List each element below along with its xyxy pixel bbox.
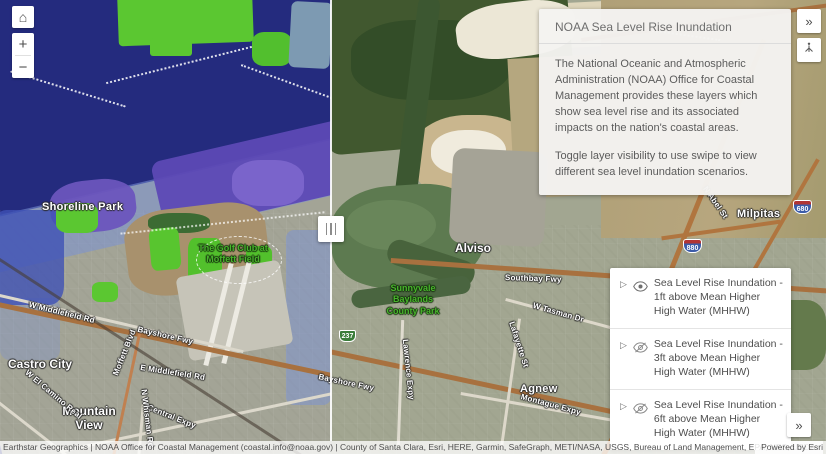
map-label-golf-club: The Golf Club at Moffett Field bbox=[192, 243, 274, 266]
info-panel-title: NOAA Sea Level Rise Inundation bbox=[539, 9, 791, 44]
collapse-panel-button[interactable]: » bbox=[797, 9, 821, 33]
map-label-castro-city: Castro City bbox=[8, 357, 72, 371]
layer-label: Sea Level Rise Inundation - 1ft above Me… bbox=[654, 277, 783, 319]
collapse-layer-list-button[interactable]: » bbox=[787, 413, 811, 437]
app-window: Shoreline Park The Golf Club at Moffett … bbox=[0, 0, 826, 454]
map-terrain-shape bbox=[288, 1, 331, 69]
info-panel: NOAA Sea Level Rise Inundation The Natio… bbox=[539, 9, 791, 195]
expand-arrow-icon[interactable]: ▷ bbox=[620, 401, 627, 441]
map-label-sunnyvale-baylands: Sunnyvale Baylands County Park bbox=[381, 283, 445, 317]
expand-arrow-icon[interactable]: ▷ bbox=[620, 279, 627, 319]
powered-by-esri: Powered by Esri bbox=[755, 441, 823, 454]
visibility-on-icon[interactable] bbox=[633, 279, 648, 319]
layer-list-panel: ▷ Sea Level Rise Inundation - 1ft above … bbox=[610, 268, 791, 450]
highlight-green-patch bbox=[92, 282, 118, 302]
double-chevron-right-icon: » bbox=[795, 418, 802, 433]
info-paragraph: Toggle layer visibility to use swipe to … bbox=[555, 149, 775, 181]
interstate-shield-880: 880 bbox=[683, 239, 702, 253]
zoom-out-button[interactable]: − bbox=[12, 56, 34, 78]
map-terrain-shape bbox=[449, 148, 549, 248]
zoom-control: + − bbox=[12, 33, 34, 78]
double-chevron-right-icon: » bbox=[805, 14, 812, 29]
swipe-widget-icon bbox=[802, 41, 816, 60]
map-label-milpitas: Milpitas bbox=[737, 208, 780, 220]
layer-row-1ft[interactable]: ▷ Sea Level Rise Inundation - 1ft above … bbox=[610, 268, 791, 328]
interstate-shield-680: 680 bbox=[793, 200, 812, 214]
attribution-bar: Earthstar Geographics | NOAA Office for … bbox=[0, 441, 826, 454]
swipe-widget-button[interactable] bbox=[797, 38, 821, 62]
freeway-road bbox=[331, 343, 624, 417]
map-label-shoreline-park: Shoreline Park bbox=[42, 201, 123, 213]
zoom-in-button[interactable]: + bbox=[12, 33, 34, 55]
boundary-dotted-line bbox=[241, 64, 331, 102]
highlight-green-patch bbox=[252, 32, 292, 66]
attribution-sources: Earthstar Geographics | NOAA Office for … bbox=[3, 441, 816, 454]
home-button[interactable]: ⌂ bbox=[12, 6, 34, 28]
info-paragraph: The National Oceanic and Atmospheric Adm… bbox=[555, 57, 775, 137]
highlight-green-patch bbox=[150, 38, 192, 56]
layer-label: Sea Level Rise Inundation - 6ft above Me… bbox=[654, 399, 783, 441]
route-shield-237: 237 bbox=[339, 330, 356, 342]
highlight-green-patch bbox=[148, 227, 182, 271]
layer-row-3ft[interactable]: ▷ Sea Level Rise Inundation - 3ft above … bbox=[610, 328, 791, 389]
swipe-handle[interactable] bbox=[318, 216, 344, 242]
layer-label: Sea Level Rise Inundation - 3ft above Me… bbox=[654, 338, 783, 380]
inundation-overlay-purple bbox=[232, 160, 304, 206]
visibility-off-icon[interactable] bbox=[633, 340, 648, 380]
inundation-overlay-blue bbox=[0, 210, 64, 305]
expand-arrow-icon[interactable]: ▷ bbox=[620, 340, 627, 380]
info-panel-body: The National Oceanic and Atmospheric Adm… bbox=[539, 44, 791, 195]
map-label-southbay-fwy: Southbay Fwy bbox=[505, 273, 562, 284]
visibility-off-icon[interactable] bbox=[633, 401, 648, 441]
map-label-alviso: Alviso bbox=[455, 241, 491, 255]
home-icon: ⌂ bbox=[19, 9, 27, 25]
